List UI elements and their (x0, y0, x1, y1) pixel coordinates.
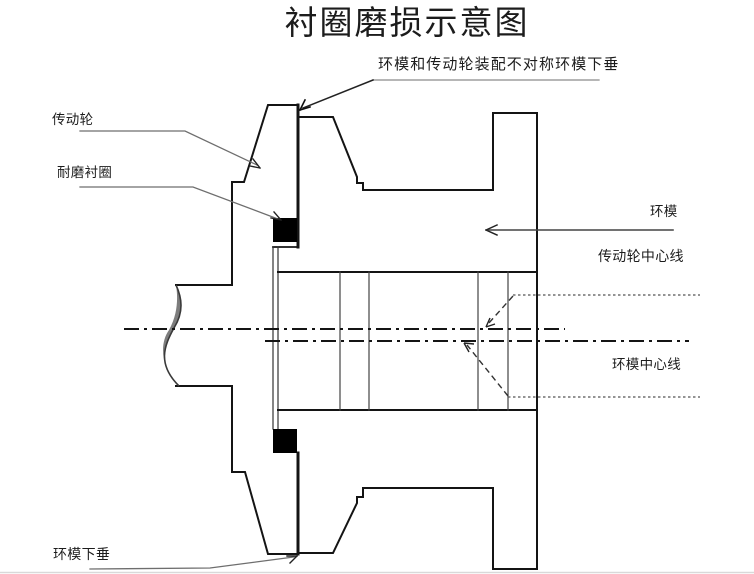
wear-liner-block-bottom (273, 429, 297, 453)
top-note-arrow-line (303, 80, 373, 108)
drive-wheel-lower-profile (176, 386, 297, 554)
centerlines (124, 329, 689, 341)
wear-liner-blocks (273, 218, 297, 453)
wear-liner-arrowhead (271, 212, 281, 220)
wear-liner-label: 耐磨衬圈 (57, 165, 112, 180)
drive-wheel-label: 传动轮 (52, 112, 93, 127)
shaft-break (163, 285, 181, 386)
ring-die-sag-leader-line (90, 557, 294, 569)
upper-dashed-arrowhead (486, 318, 495, 327)
upper-dashed-arrow-line (488, 296, 513, 324)
reference-pointers (464, 295, 700, 397)
drive-wheel-upper-profile (176, 105, 297, 285)
drive-wheel-leader-line (80, 131, 257, 165)
schematic-page: 衬圈磨损示意图 环模和传动轮装配不对称环模下垂 传动轮 耐磨衬圈 环模 传动轮中… (0, 0, 754, 574)
label-leaders (80, 80, 673, 569)
ring-die-sag-label: 环模下垂 (53, 547, 110, 563)
ring-die-label: 环模 (650, 204, 678, 219)
diagram-canvas: 衬圈磨损示意图 环模和传动轮装配不对称环模下垂 传动轮 耐磨衬圈 环模 传动轮中… (0, 0, 754, 574)
top-note-label: 环模和传动轮装配不对称环模下垂 (378, 56, 620, 73)
ring-die-centerline-label: 环模中心线 (612, 357, 681, 372)
wear-liner-block-top (273, 218, 297, 242)
wear-liner-leader-line (80, 187, 278, 219)
diagram-title: 衬圈磨损示意图 (285, 5, 530, 42)
drive-wheel-centerline-label: 传动轮中心线 (598, 249, 684, 265)
lower-dashed-arrow-line (467, 345, 508, 396)
shaft-break-shading (163, 285, 181, 386)
